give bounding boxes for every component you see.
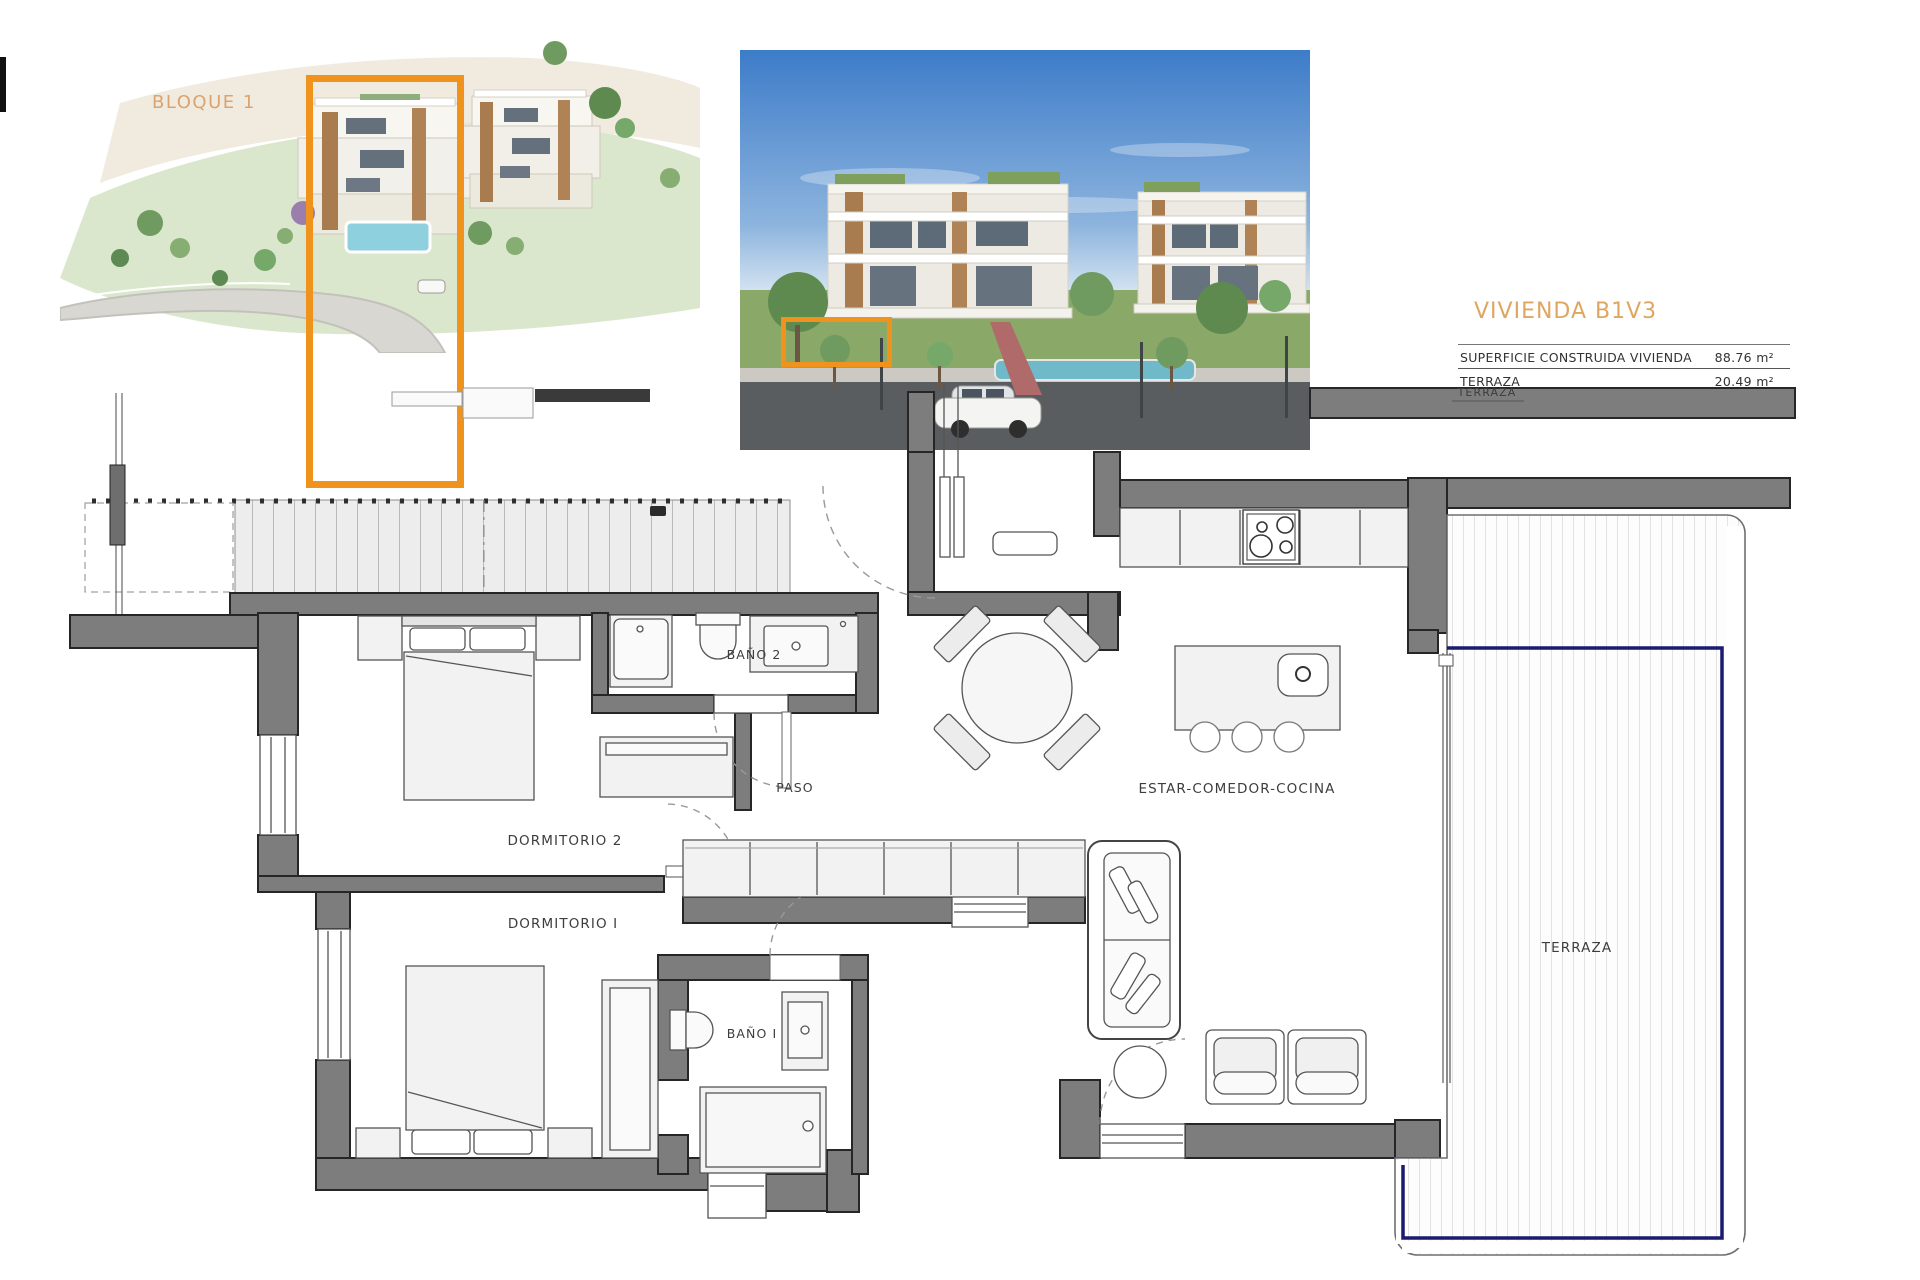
bed-dorm2 xyxy=(404,652,534,800)
brochure-page: BLOQUE 1 xyxy=(0,0,1920,1280)
toilet-tank xyxy=(670,1010,686,1050)
nightstand xyxy=(356,1128,400,1158)
nightstand xyxy=(548,1128,592,1158)
dining-table xyxy=(962,633,1072,743)
stove xyxy=(1243,510,1299,564)
room-label-dormitorio1: DORMITORIO I xyxy=(508,916,618,932)
armchair xyxy=(1288,1030,1366,1104)
stool xyxy=(1274,722,1304,752)
stool xyxy=(1232,722,1262,752)
terrace xyxy=(1395,515,1745,1255)
pillow xyxy=(470,628,525,650)
nightstand xyxy=(536,616,580,660)
armchair xyxy=(1206,1030,1284,1104)
room-label-paso: PASO xyxy=(776,780,813,795)
stool xyxy=(1190,722,1220,752)
entry-bench xyxy=(993,532,1057,555)
side-table xyxy=(1114,1046,1166,1098)
sofa xyxy=(1088,841,1180,1039)
stair-fragments xyxy=(392,388,650,418)
room-label-estar: ESTAR-COMEDOR-COCINA xyxy=(1139,781,1336,797)
slider-handle xyxy=(1439,655,1453,666)
floor-plan: DORMITORIO 2 DORMITORIO I BAÑO 2 BAÑO I … xyxy=(0,0,1920,1280)
toilet-tank xyxy=(696,613,740,625)
pillow xyxy=(474,1130,532,1154)
bed-dorm1 xyxy=(406,966,544,1130)
headboard xyxy=(402,616,536,626)
room-label-terraza: TERRAZA xyxy=(1541,940,1612,956)
nightstand xyxy=(358,616,402,660)
room-label-terraza-upper: TERRAZA xyxy=(1457,386,1517,399)
room-label-bano2: BAÑO 2 xyxy=(727,647,782,662)
room-label-dormitorio2: DORMITORIO 2 xyxy=(508,833,623,849)
room-label-bano1: BAÑO I xyxy=(727,1026,778,1041)
pillow xyxy=(410,628,465,650)
wall-sensor-glyph xyxy=(650,506,666,516)
toilet-bano1 xyxy=(686,1012,713,1048)
section-marker xyxy=(110,393,125,648)
pillow xyxy=(412,1130,470,1154)
upper-deck-strip xyxy=(85,500,790,593)
